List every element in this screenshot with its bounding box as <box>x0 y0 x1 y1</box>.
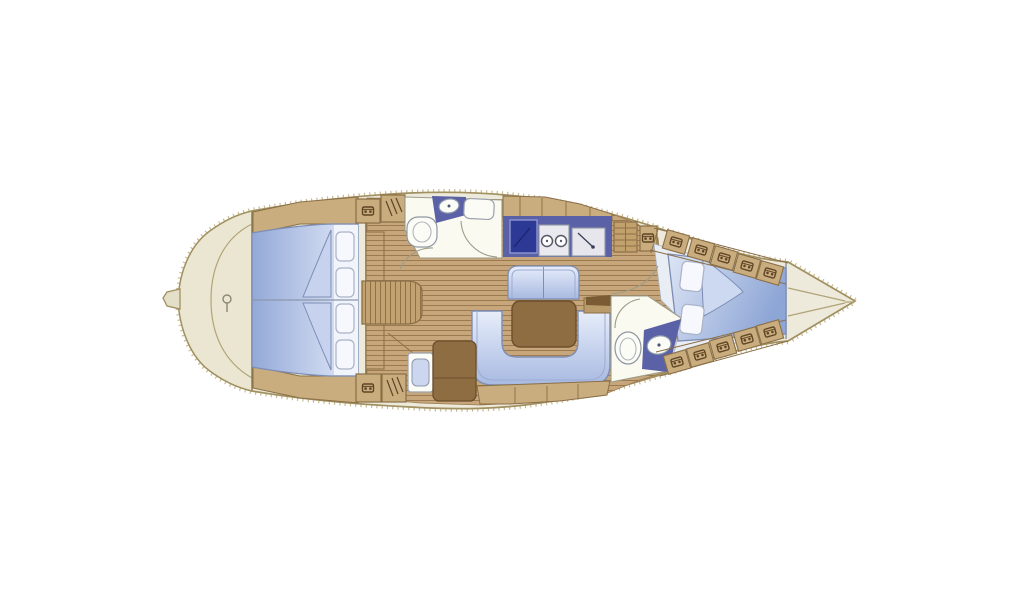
sink-drain <box>448 205 451 208</box>
pillow <box>679 304 704 335</box>
bow-roller <box>163 289 180 309</box>
burner-dot <box>560 240 562 242</box>
pillow <box>336 268 354 297</box>
louver-locker-upper <box>366 232 384 284</box>
locker-hatch <box>356 374 381 402</box>
cabin-infill-table <box>362 281 422 324</box>
locker-hatch <box>356 199 380 223</box>
sink-drain <box>657 343 660 346</box>
saloon-table <box>512 301 576 347</box>
foredeck <box>178 211 252 391</box>
locker-vents <box>381 195 405 222</box>
pillow <box>679 261 704 292</box>
chart-table <box>433 341 476 401</box>
sink-drain <box>591 245 595 249</box>
burner-dot <box>546 240 548 242</box>
galley <box>503 196 612 257</box>
floorplan-canvas <box>0 0 1024 600</box>
aft-head-toilet <box>615 332 641 364</box>
pillow <box>336 304 354 333</box>
pillow <box>336 232 354 261</box>
louver-locker-lower <box>366 318 384 369</box>
nav-seat-cushion <box>412 359 429 386</box>
locker-vents <box>382 374 406 402</box>
yacht-layout-diagram <box>0 0 1024 600</box>
shower-seat <box>463 198 494 220</box>
pillow <box>336 340 354 369</box>
